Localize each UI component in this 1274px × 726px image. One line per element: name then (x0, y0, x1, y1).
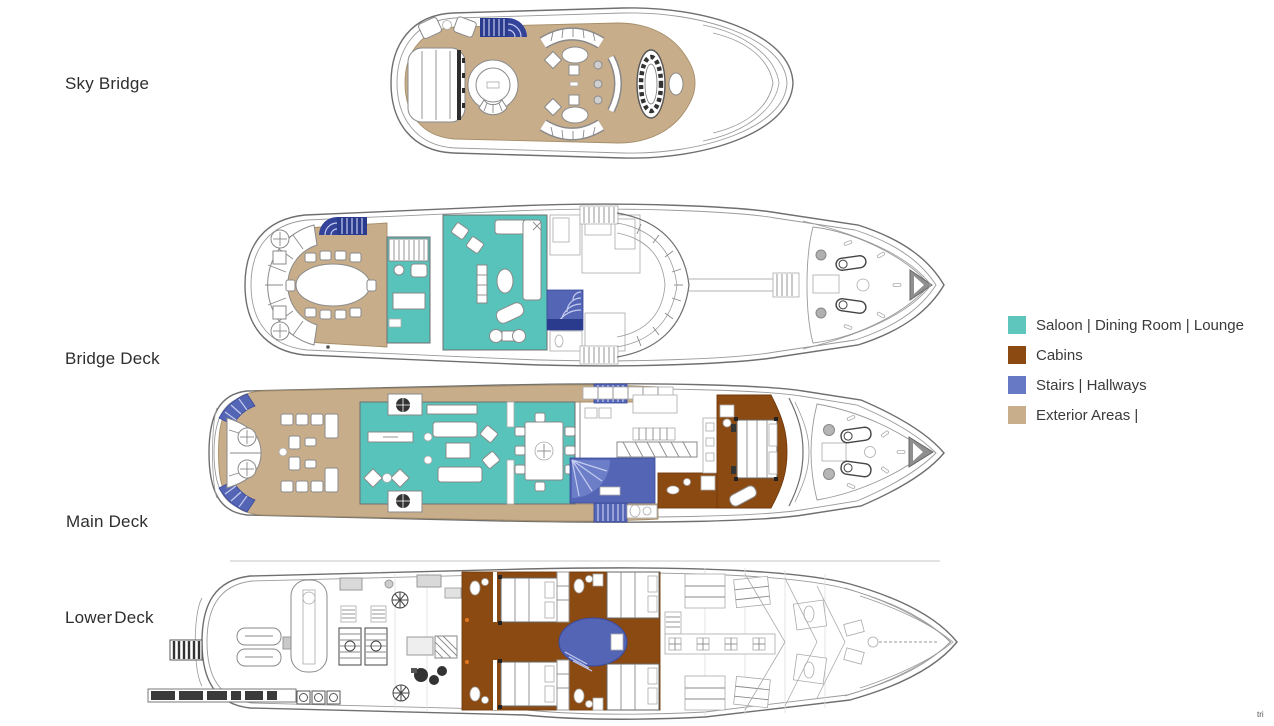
deck-label-main-deck: Main Deck (66, 512, 148, 532)
bed (607, 664, 659, 710)
passerelle (148, 689, 296, 702)
legend: Saloon | Dining Room | Lounge Cabins Sta… (1008, 310, 1244, 430)
engine (365, 628, 387, 665)
saloon-color-swatch (1008, 316, 1026, 334)
deck-label-sky-bridge: Sky Bridge (65, 74, 149, 94)
legend-label: Cabins (1036, 347, 1083, 364)
bed (498, 575, 557, 625)
main-saloon (360, 394, 575, 512)
legend-item-cabins: Cabins (1008, 340, 1244, 370)
foredeck (807, 227, 932, 343)
stairs-color-swatch (1008, 376, 1026, 394)
yacht-deck-plans: Sky Bridge Bridge Deck Main Deck Lower D… (0, 0, 1274, 726)
bridge-deck-plan (213, 193, 948, 378)
dining-table (296, 264, 370, 306)
laundry (297, 691, 340, 704)
stairs-hallway (547, 290, 583, 330)
legend-label: Stairs | Hallways (1036, 377, 1147, 394)
legend-item-exterior: Exterior Areas | (1008, 400, 1244, 430)
cabins-color-swatch (1008, 346, 1026, 364)
skylounge (443, 215, 547, 350)
deck-label-bridge-deck: Bridge Deck (65, 349, 160, 369)
guest-cabins (462, 572, 660, 710)
exterior-color-swatch (1008, 406, 1026, 424)
corner-mark: tri (1257, 710, 1264, 719)
bed (498, 659, 557, 709)
legend-label: Exterior Areas | (1036, 407, 1138, 424)
legend-item-saloon: Saloon | Dining Room | Lounge (1008, 310, 1244, 340)
main-deck-plan (203, 378, 948, 528)
sun-lounge (408, 48, 465, 122)
legend-label: Saloon | Dining Room | Lounge (1036, 317, 1244, 334)
engine (339, 628, 361, 665)
stern-ladder (170, 640, 202, 660)
sky-bridge-plan (383, 3, 798, 163)
lower-deck-plan (145, 558, 965, 726)
deck-label-lower-deck: Lower Deck (65, 608, 154, 628)
legend-item-stairs: Stairs | Hallways (1008, 370, 1244, 400)
pilothouse (387, 237, 430, 343)
foredeck-steps (773, 273, 799, 297)
bed (607, 572, 659, 618)
